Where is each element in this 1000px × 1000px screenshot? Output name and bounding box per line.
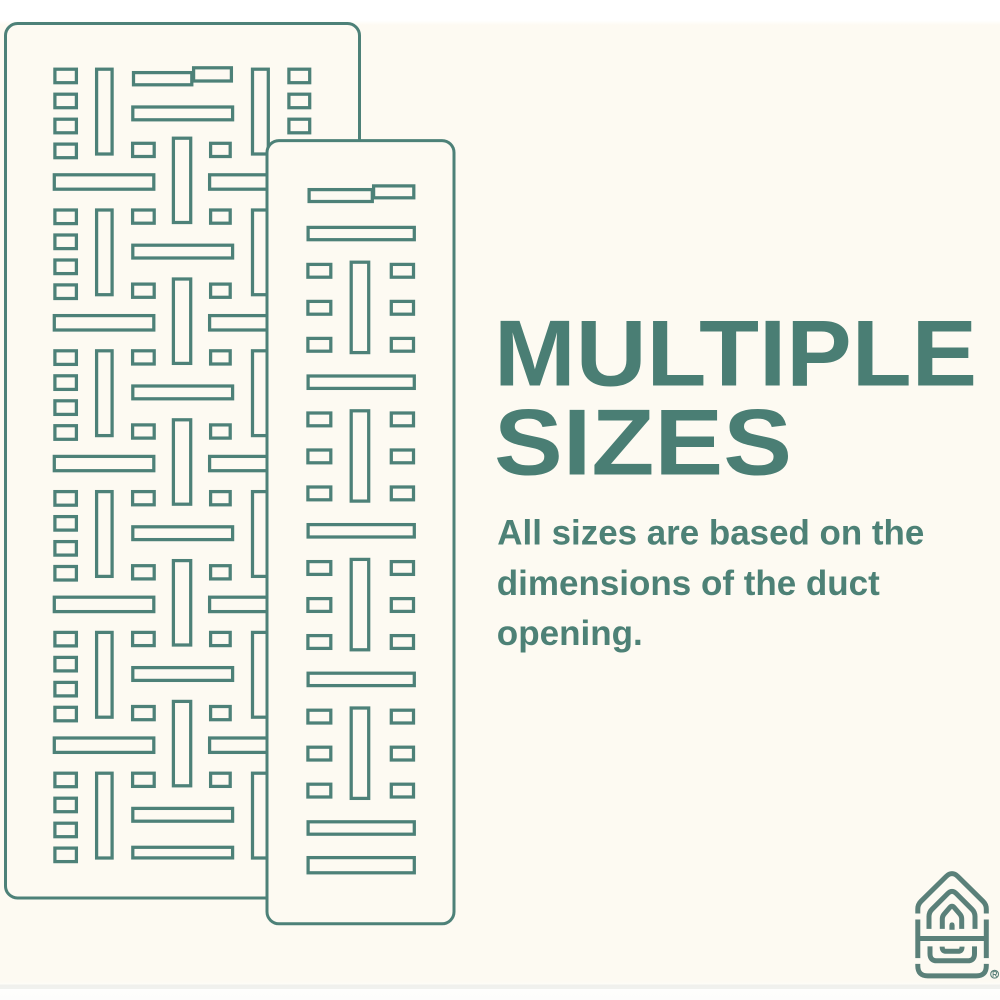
svg-text:SIZES: SIZES [494,390,792,495]
svg-text:dimensions of the duct: dimensions of the duct [497,564,880,603]
svg-text:All sizes are based on the: All sizes are based on the [497,513,924,552]
svg-text:opening.: opening. [497,614,643,653]
